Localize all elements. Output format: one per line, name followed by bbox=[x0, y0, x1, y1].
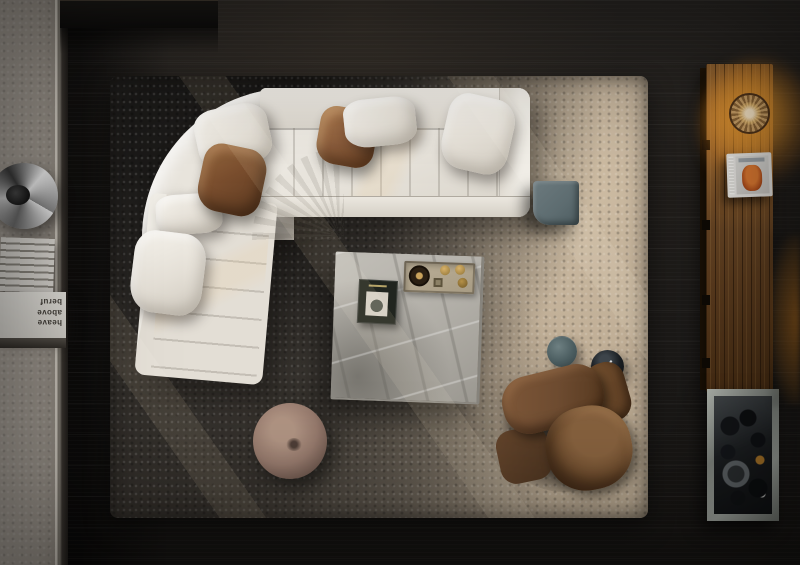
marble-vitrine bbox=[707, 389, 779, 521]
book-spine-titles: heave above beruf bbox=[4, 296, 62, 327]
glass-objects bbox=[714, 396, 772, 514]
white-pillow bbox=[127, 228, 208, 318]
coffee-table bbox=[330, 251, 484, 404]
sofa-front-edge bbox=[260, 196, 530, 217]
display-book-cover bbox=[735, 155, 769, 194]
cabinet-hinge bbox=[702, 358, 710, 368]
dark-console bbox=[60, 0, 218, 28]
white-pillow bbox=[342, 94, 419, 149]
book-title: above bbox=[4, 306, 62, 316]
tray-box bbox=[433, 278, 442, 287]
book-box: heave above beruf bbox=[0, 292, 66, 338]
leather-armchair bbox=[496, 362, 636, 494]
tray-ring-dish bbox=[408, 265, 430, 287]
decor-tray bbox=[403, 261, 475, 294]
cabinet-hinge bbox=[702, 220, 710, 230]
pouf bbox=[253, 403, 327, 479]
art-book bbox=[357, 279, 398, 325]
brass-dish bbox=[457, 278, 467, 288]
cube-side-table bbox=[533, 181, 579, 225]
magazine-stack bbox=[0, 237, 55, 293]
book-title: beruf bbox=[4, 296, 62, 306]
living-room-top-view: heave above beruf bbox=[0, 0, 800, 565]
brass-dish bbox=[440, 265, 450, 275]
cabinet-hinge bbox=[702, 295, 710, 305]
rattan-sconce-lamp bbox=[729, 93, 770, 134]
book-title: heave bbox=[4, 317, 62, 327]
floor-light-reflection bbox=[770, 235, 800, 405]
brass-dish bbox=[455, 265, 465, 275]
concrete-platform-edge bbox=[55, 0, 68, 565]
display-book bbox=[726, 152, 773, 198]
